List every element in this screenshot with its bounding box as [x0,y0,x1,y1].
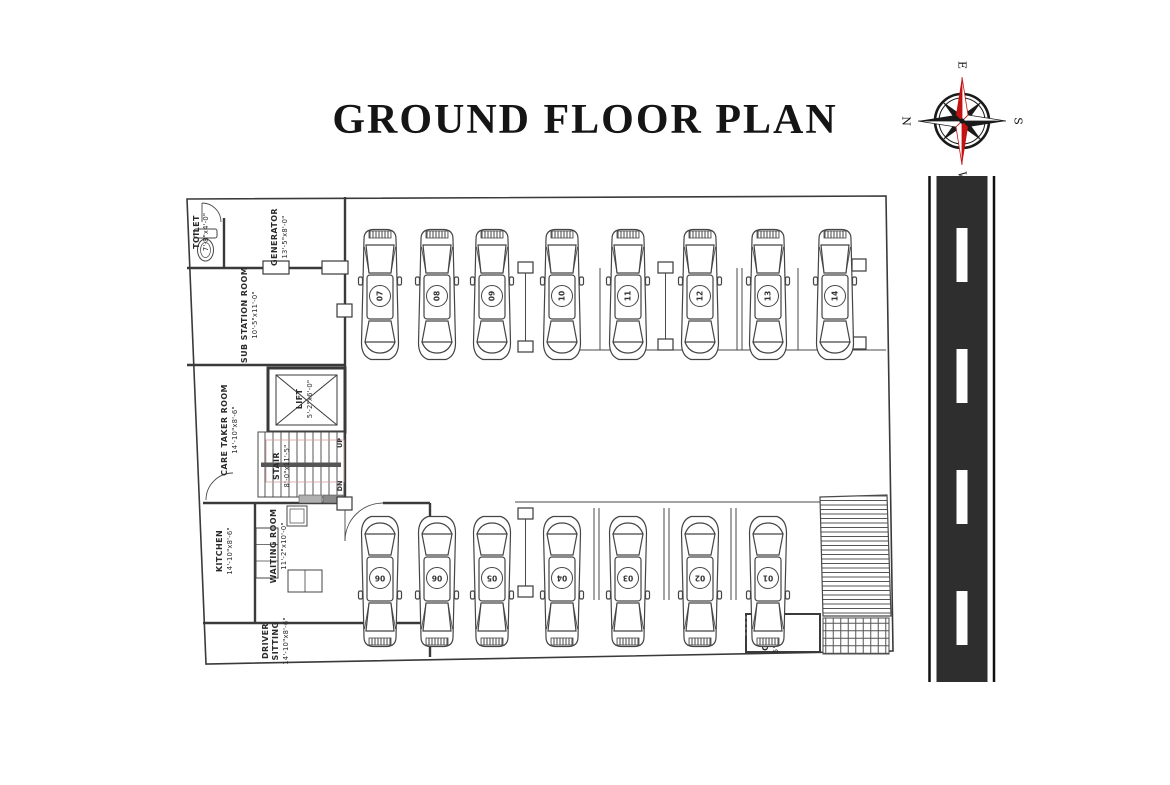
entrance-paving [823,618,889,654]
parking-car-10: 10 [541,230,584,360]
road [930,176,995,682]
toilet-dims: 7'-8"x4'-0" [202,213,210,251]
waiting-dims: 11'-2"x10'-0" [280,522,288,569]
parking-car-03: 03 [607,517,650,647]
waiting-label: WAITING ROOM [269,509,278,584]
parking-car-09: 09 [471,230,514,360]
car-number: 02 [695,574,705,583]
parking-car-02: 02 [679,517,722,647]
driver-label-1: DRIVER [261,623,270,659]
stair-label: STAIR [272,452,281,480]
parking-car-08: 08 [416,230,459,360]
caretaker-label: CARE TAKER ROOM [220,384,229,476]
staircase [258,432,344,503]
ramp-hatch [820,495,891,616]
parking-car-13: 13 [747,230,790,360]
stair-dn-label: DN [336,481,344,492]
car-number: 14 [831,291,840,301]
car-number: 03 [623,574,633,583]
car-number: 10 [558,291,567,301]
parking-car-06: 06 [416,517,459,647]
driver-label-2: SITTING [271,622,280,661]
car-number: 11 [624,291,633,301]
page-title: GROUND FLOOR PLAN [332,97,837,143]
kitchen-dims: 14'-10"x8'-6" [226,527,234,574]
driver-dims: 14'-10"x8'-6" [282,617,290,664]
parking-car-11: 11 [607,230,650,360]
compass-rose-icon: E N S W [900,61,1025,183]
floor-plan-canvas: GROUND FLOOR PLAN E N S W [0,0,1170,785]
parking-car-05: 05 [471,517,514,647]
floor-plan-page: GROUND FLOOR PLAN E N S W [0,0,1170,785]
lift-label: LIFT [295,389,304,410]
kitchen-label: KITCHEN [215,530,224,572]
car-number: 01 [763,574,773,583]
compass-s: S [1012,117,1025,125]
car-number: 07 [376,291,385,301]
caretaker-dims: 14'-10"x8'-6" [231,406,239,453]
substation-label: SUB STATION ROOM [240,267,249,363]
car-number: 12 [696,291,705,301]
car-number: 09 [488,291,497,301]
parking-car-06: 06 [359,517,402,647]
parking-car-04: 04 [541,517,584,647]
car-number: 08 [433,291,442,301]
compass-e: E [956,61,969,69]
car-number: 04 [557,574,567,583]
car-number: 05 [487,574,497,583]
stair-up-label: UP [336,438,344,448]
parking-car-07: 07 [359,230,402,360]
generator-label: GENERATOR [270,208,279,266]
parking-car-14: 14 [814,230,857,360]
compass-n: N [900,116,913,126]
parking-car-12: 12 [679,230,722,360]
generator-dims: 13'-5"x8'-0" [281,216,289,259]
car-number: 06 [432,574,442,583]
car-number: 13 [764,291,773,301]
lift-dims: 5'-2"x6'-0" [306,380,314,418]
toilet-label: TOILET [192,215,201,249]
substation-dims: 10'-5"x11'-0" [251,291,259,338]
parking-car-01: 01 [747,517,790,647]
car-number: 06 [375,574,385,583]
stair-dims: 8'-0"x11'-5" [283,445,291,488]
